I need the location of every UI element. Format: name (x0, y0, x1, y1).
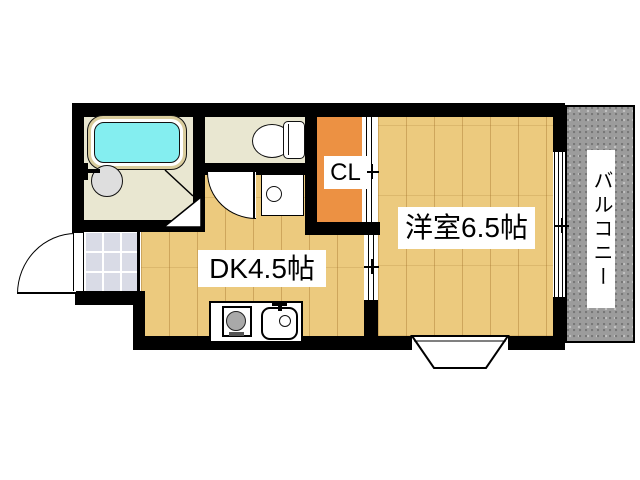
wall (305, 222, 380, 235)
entrance-tile (84, 233, 137, 293)
entrance-step-edge (137, 231, 140, 293)
toilet-door-leaf (253, 172, 255, 218)
bay-window-gap (413, 336, 507, 350)
bathtub-icon (87, 115, 187, 170)
bay-window (412, 336, 508, 368)
wall (508, 336, 565, 350)
entrance-door-arc (17, 233, 76, 294)
wall (553, 103, 565, 152)
stove-icon (222, 306, 252, 337)
wall (305, 103, 317, 235)
floorplan-canvas: バルコニー (0, 0, 640, 480)
sink-faucet-icon (278, 305, 282, 311)
kitchen-sink-icon (261, 307, 298, 340)
washing-machine-pan-icon (261, 174, 304, 216)
bath-faucet-icon (88, 169, 100, 173)
tick-mark (554, 218, 569, 233)
entrance-door-jamb (73, 233, 84, 291)
toilet-tank-icon (283, 121, 305, 159)
room-dk-label: DK4.5帖 (198, 250, 326, 287)
tick-mark (364, 259, 379, 274)
room-closet-label: CL (324, 156, 367, 189)
wall (133, 291, 145, 350)
wall (72, 220, 205, 232)
balcony-label: バルコニー (587, 150, 615, 308)
room-western-label: 洋室6.5帖 (398, 207, 535, 249)
